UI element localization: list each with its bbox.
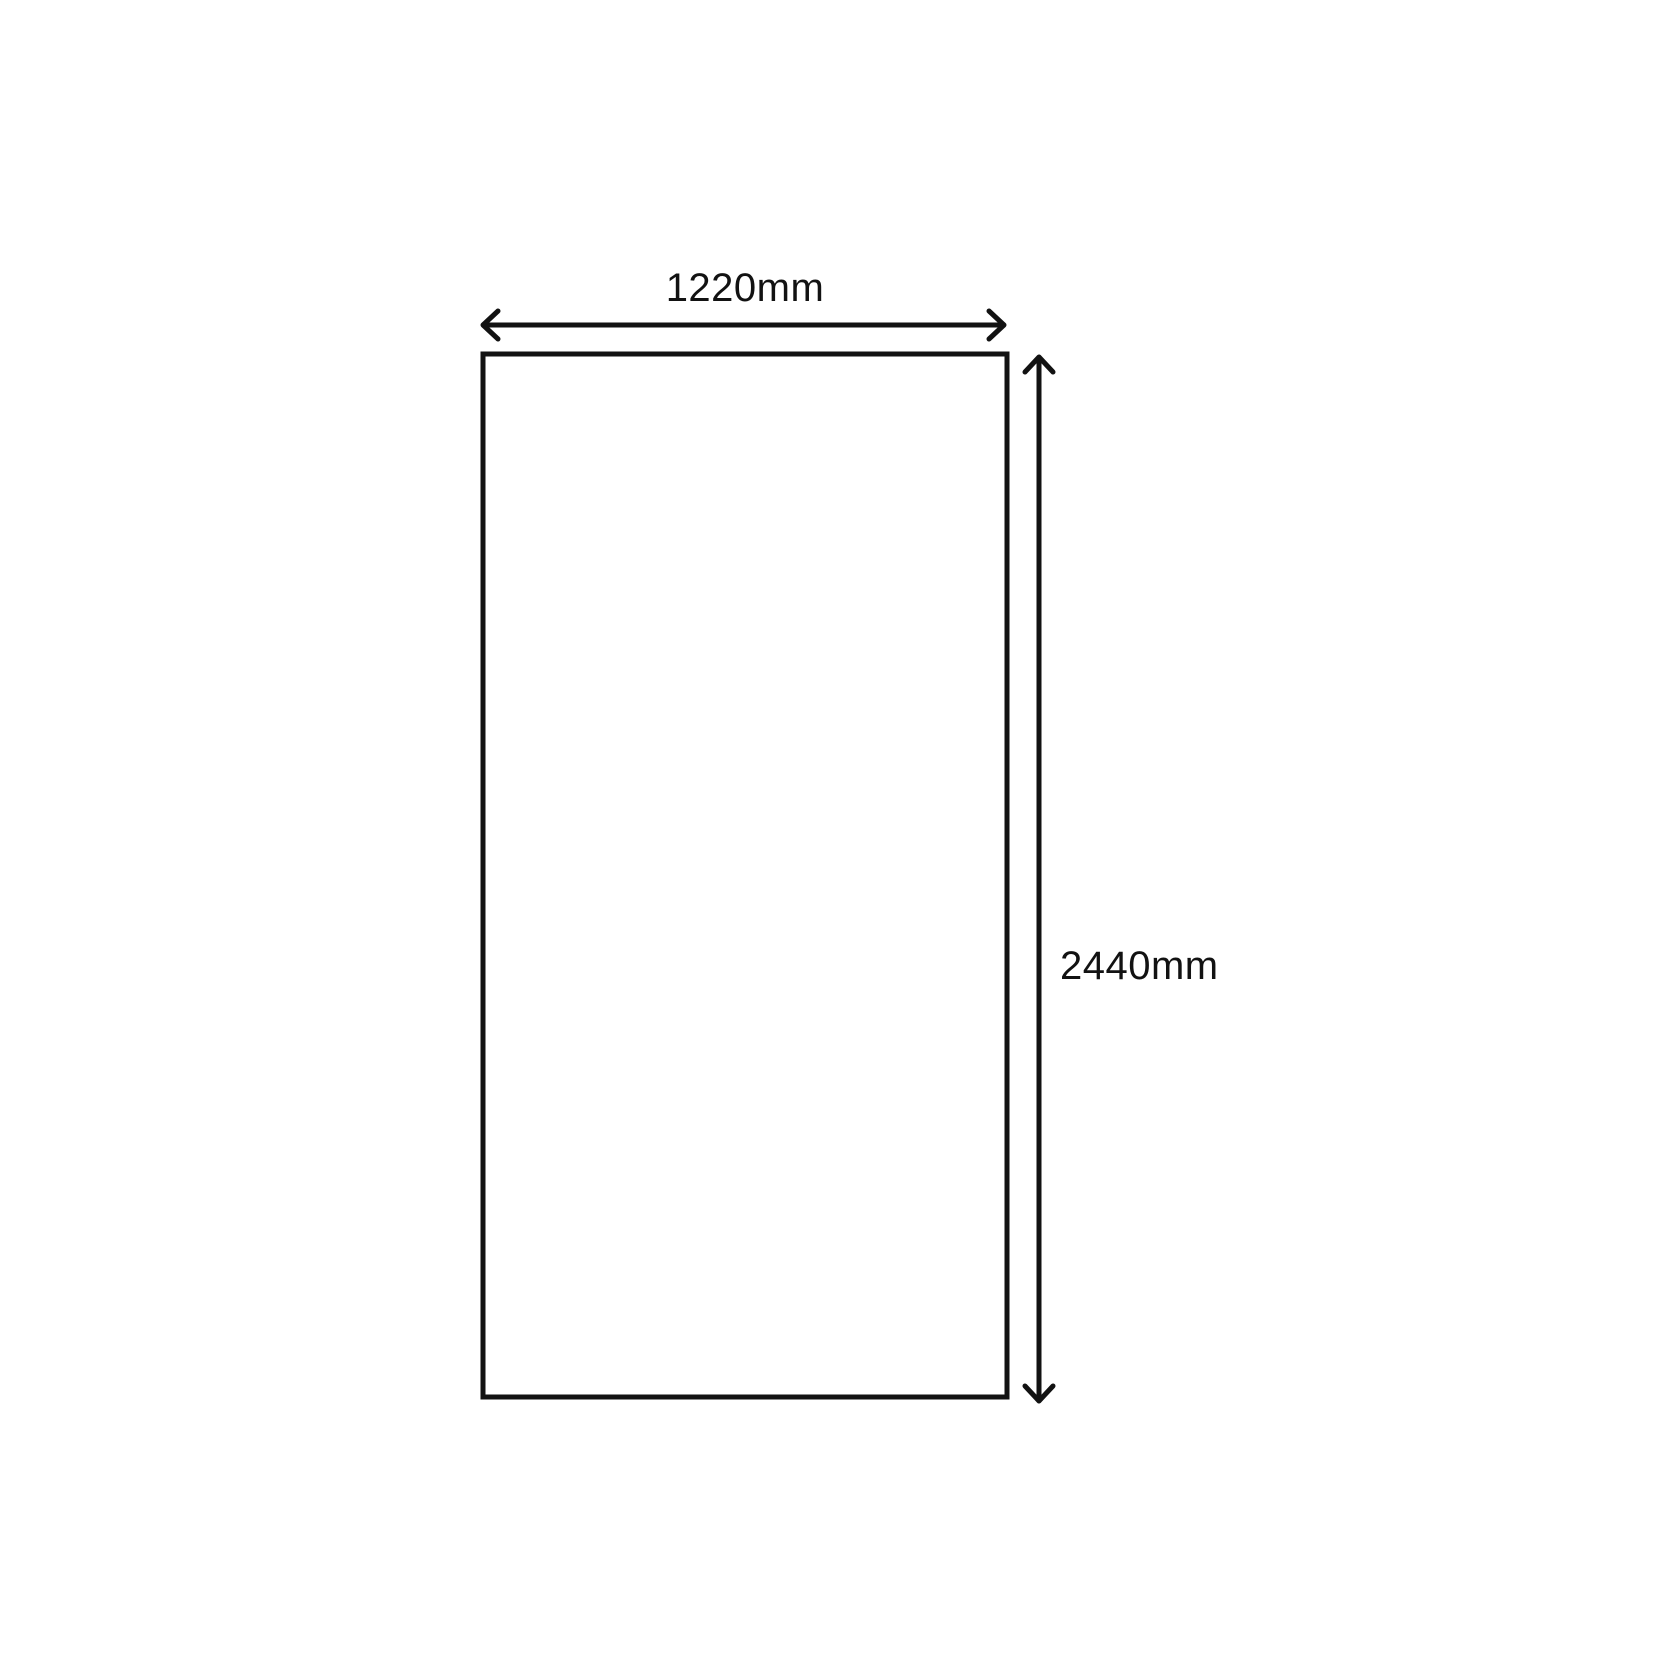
diagram-drawing: [0, 0, 1676, 1676]
sheet-outline-rectangle: [483, 354, 1007, 1397]
height-dimension-arrow: [1025, 357, 1053, 1401]
width-dimension-arrow: [483, 311, 1004, 339]
width-dimension-label: 1220mm: [483, 268, 1007, 308]
dimension-diagram: 1220mm 2440mm: [0, 0, 1676, 1676]
height-dimension-label: 2440mm: [1060, 946, 1219, 986]
